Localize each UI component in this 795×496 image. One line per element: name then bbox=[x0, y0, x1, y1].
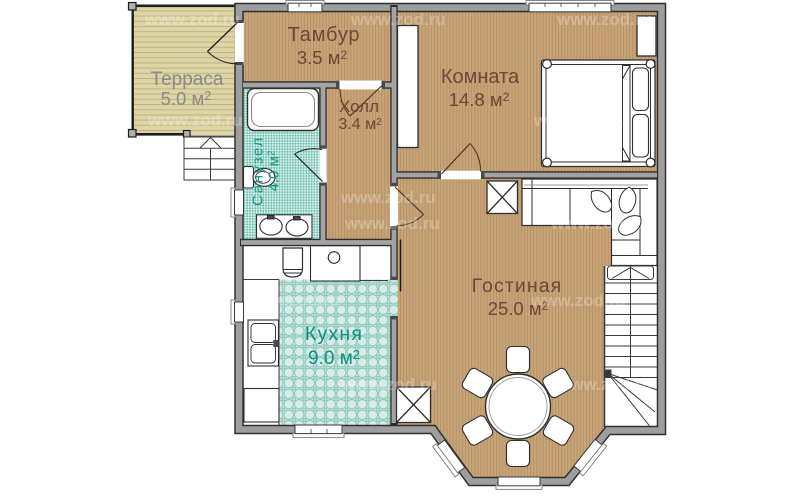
svg-text:Санузел: Санузел bbox=[250, 136, 267, 206]
svg-text:5.0 м2: 5.0 м2 bbox=[161, 88, 212, 109]
svg-text:www.zod.ru: www.zod.ru bbox=[533, 111, 629, 130]
svg-text:www.zod.ru: www.zod.ru bbox=[350, 10, 446, 29]
svg-text:www.zod.ru: www.zod.ru bbox=[144, 10, 240, 29]
svg-text:www.zod.ru: www.zod.ru bbox=[550, 214, 646, 233]
svg-text:Терраса: Терраса bbox=[151, 69, 224, 90]
svg-text:Холл: Холл bbox=[339, 97, 379, 116]
svg-text:Тамбур: Тамбур bbox=[288, 24, 361, 46]
svg-text:3.5 м2: 3.5 м2 bbox=[297, 47, 348, 68]
svg-text:www.zod.ru: www.zod.ru bbox=[341, 375, 437, 394]
svg-text:www.zod.ru: www.zod.ru bbox=[344, 214, 440, 233]
svg-text:www.zod.ru: www.zod.ru bbox=[147, 111, 243, 130]
svg-text:9.0 м2: 9.0 м2 bbox=[308, 347, 360, 369]
svg-text:14.8 м2: 14.8 м2 bbox=[449, 89, 510, 110]
svg-text:www.zod.ru: www.zod.ru bbox=[556, 375, 652, 394]
svg-text:Кухня: Кухня bbox=[305, 323, 363, 345]
svg-text:3.4 м2: 3.4 м2 bbox=[338, 116, 382, 133]
svg-text:4.0 м2: 4.0 м2 bbox=[266, 150, 283, 191]
svg-text:www.zod.ru: www.zod.ru bbox=[244, 291, 340, 310]
svg-text:www.zod.ru: www.zod.ru bbox=[530, 291, 626, 310]
svg-text:Комната: Комната bbox=[441, 66, 520, 88]
svg-text:www.zod.ru: www.zod.ru bbox=[340, 188, 436, 207]
svg-text:www.zod.ru: www.zod.ru bbox=[556, 10, 652, 29]
